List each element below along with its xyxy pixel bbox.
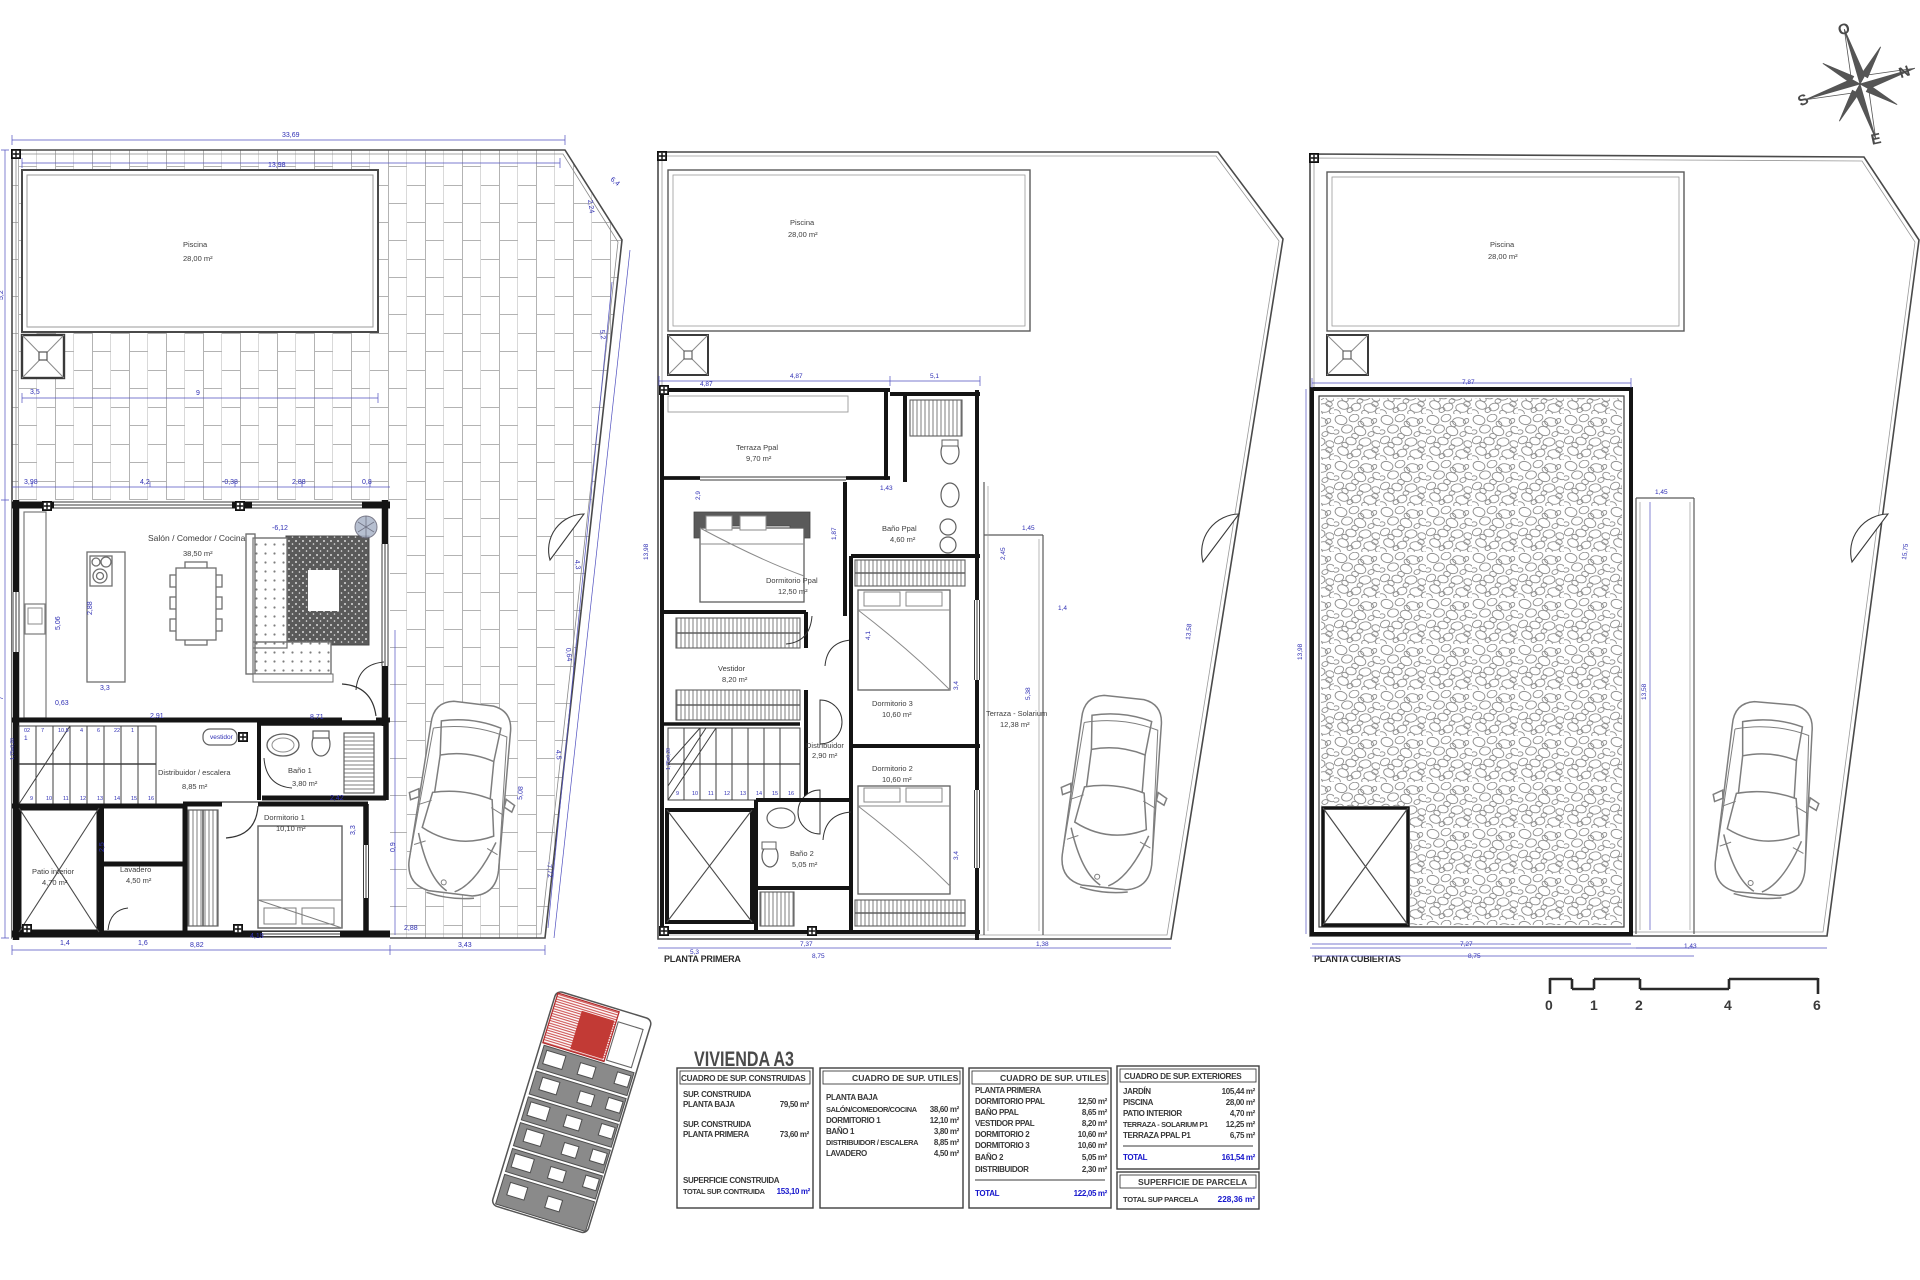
svg-text:10: 10 xyxy=(692,791,698,797)
svg-text:8,20 m²: 8,20 m² xyxy=(1082,1119,1108,1128)
svg-text:5,05 m²: 5,05 m² xyxy=(1082,1153,1108,1162)
svg-text:13,58: 13,58 xyxy=(1641,683,1648,700)
svg-text:2,91: 2,91 xyxy=(150,713,164,720)
svg-text:4,50 m²: 4,50 m² xyxy=(934,1149,960,1158)
svg-text:6: 6 xyxy=(1813,997,1821,1013)
svg-text:BAÑO PPAL: BAÑO PPAL xyxy=(975,1108,1019,1117)
svg-text:5,38: 5,38 xyxy=(1025,687,1032,700)
svg-text:BAÑO 1: BAÑO 1 xyxy=(826,1127,855,1136)
svg-text:CUADRO DE SUP. EXTERIORES: CUADRO DE SUP. EXTERIORES xyxy=(1124,1072,1242,1081)
svg-text:DORMITORIO 2: DORMITORIO 2 xyxy=(975,1130,1030,1139)
svg-text:3,4: 3,4 xyxy=(953,851,960,860)
svg-text:10,60 m²: 10,60 m² xyxy=(1078,1130,1108,1139)
svg-text:0,63: 0,63 xyxy=(55,700,69,707)
svg-text:Baño Ppal: Baño Ppal xyxy=(882,524,917,533)
svg-text:1,45: 1,45 xyxy=(1655,489,1668,496)
svg-text:28,00 m²: 28,00 m² xyxy=(183,254,213,263)
svg-text:8,85 m²: 8,85 m² xyxy=(182,782,208,791)
svg-text:10,10 m²: 10,10 m² xyxy=(276,824,306,833)
svg-text:5,2: 5,2 xyxy=(598,329,606,340)
svg-text:PATIO INTERIOR: PATIO INTERIOR xyxy=(1123,1109,1182,1118)
svg-text:9: 9 xyxy=(196,390,200,397)
svg-text:3,3: 3,3 xyxy=(350,825,357,835)
svg-text:122,05 m²: 122,05 m² xyxy=(1074,1189,1108,1198)
svg-text:38,50 m²: 38,50 m² xyxy=(183,549,213,558)
svg-text:10,60 m²: 10,60 m² xyxy=(882,710,912,719)
svg-text:8,71: 8,71 xyxy=(310,714,324,721)
svg-text:8,65 m²: 8,65 m² xyxy=(1082,1108,1108,1117)
svg-text:12,10 m²: 12,10 m² xyxy=(930,1116,960,1125)
svg-text:7,37: 7,37 xyxy=(800,941,813,948)
svg-text:12,50 m²: 12,50 m² xyxy=(1078,1097,1108,1106)
svg-text:TOTAL SUP. CONTRUIDA: TOTAL SUP. CONTRUIDA xyxy=(683,1187,766,1196)
svg-text:CUADRO DE SUP. CONSTRUIDAS: CUADRO DE SUP. CONSTRUIDAS xyxy=(681,1074,806,1083)
svg-text:11: 11 xyxy=(708,791,714,797)
svg-text:2: 2 xyxy=(1635,997,1643,1013)
svg-text:Terraza Ppal: Terraza Ppal xyxy=(736,443,778,452)
svg-text:Dormitorio 1: Dormitorio 1 xyxy=(264,813,305,822)
svg-text:14: 14 xyxy=(114,796,120,802)
svg-text:Vestidor: Vestidor xyxy=(718,664,746,673)
svg-text:3,80 m²: 3,80 m² xyxy=(934,1127,960,1136)
svg-text:1,38: 1,38 xyxy=(1036,941,1049,948)
svg-text:4,1: 4,1 xyxy=(865,631,872,640)
svg-text:Baño 1: Baño 1 xyxy=(288,766,312,775)
svg-text:8,75: 8,75 xyxy=(812,953,825,960)
svg-text:8,85 m²: 8,85 m² xyxy=(934,1138,960,1147)
svg-text:0,8: 0,8 xyxy=(362,479,372,486)
svg-text:JARDÍN: JARDÍN xyxy=(1123,1087,1151,1096)
svg-text:0,9: 0,9 xyxy=(390,842,397,852)
svg-text:4,5: 4,5 xyxy=(554,750,562,760)
svg-text:Dormitorio 3: Dormitorio 3 xyxy=(872,699,913,708)
svg-text:6,75 m²: 6,75 m² xyxy=(1230,1131,1256,1140)
svg-text:TERRAZA - SOLARIUM P1: TERRAZA - SOLARIUM P1 xyxy=(1123,1120,1208,1129)
svg-text:1: 1 xyxy=(131,728,134,734)
svg-text:Patio interior: Patio interior xyxy=(32,867,75,876)
svg-text:1,4: 1,4 xyxy=(60,940,70,947)
svg-text:3,80 m²: 3,80 m² xyxy=(292,779,318,788)
svg-text:PLANTA PRIMERA: PLANTA PRIMERA xyxy=(975,1086,1041,1095)
svg-text:6: 6 xyxy=(97,728,100,734)
svg-text:7: 7 xyxy=(0,696,5,700)
svg-text:28,00 m²: 28,00 m² xyxy=(1488,252,1518,261)
svg-text:3,98: 3,98 xyxy=(24,479,38,486)
svg-text:16: 16 xyxy=(148,796,154,802)
svg-text:5,06: 5,06 xyxy=(55,616,62,630)
svg-text:1: 1 xyxy=(1590,997,1598,1013)
svg-text:PLANTA CUBIERTAS: PLANTA CUBIERTAS xyxy=(1314,954,1401,964)
svg-text:SUPERFICIE DE PARCELA: SUPERFICIE DE PARCELA xyxy=(1138,1177,1247,1187)
svg-text:Dormitorio Ppal: Dormitorio Ppal xyxy=(766,576,818,585)
svg-text:1,4: 1,4 xyxy=(1058,605,1067,612)
svg-text:PLANTA BAJA: PLANTA BAJA xyxy=(826,1093,878,1102)
svg-text:161,54 m²: 161,54 m² xyxy=(1222,1153,1256,1162)
svg-text:3,4: 3,4 xyxy=(953,681,960,690)
svg-text:14: 14 xyxy=(756,791,762,797)
svg-text:12,38 m²: 12,38 m² xyxy=(1000,720,1030,729)
svg-text:8,82: 8,82 xyxy=(190,942,204,949)
svg-text:SUP. CONSTRUIDA: SUP. CONSTRUIDA xyxy=(683,1090,752,1099)
svg-text:2,88: 2,88 xyxy=(87,601,94,615)
svg-text:1,75x0,28: 1,75x0,28 xyxy=(666,748,672,770)
svg-text:2,9: 2,9 xyxy=(695,491,702,500)
svg-text:5,3: 5,3 xyxy=(690,949,699,956)
svg-text:13,98: 13,98 xyxy=(268,162,286,169)
svg-text:1,6: 1,6 xyxy=(138,940,148,947)
svg-text:7,87: 7,87 xyxy=(1462,379,1475,386)
svg-text:-7,72: -7,72 xyxy=(545,862,553,879)
svg-text:13: 13 xyxy=(97,796,103,802)
svg-text:0,64: 0,64 xyxy=(564,647,572,661)
svg-text:11: 11 xyxy=(63,796,69,802)
svg-text:0: 0 xyxy=(1545,997,1553,1013)
svg-text:8,20 m²: 8,20 m² xyxy=(722,675,748,684)
svg-text:LAVADERO: LAVADERO xyxy=(826,1149,867,1158)
svg-text:4,19: 4,19 xyxy=(250,933,264,940)
svg-text:PLANTA PRIMERA: PLANTA PRIMERA xyxy=(664,954,741,964)
svg-text:PLANTA BAJA: PLANTA BAJA xyxy=(683,1100,735,1109)
svg-text:1,43: 1,43 xyxy=(1684,943,1697,950)
svg-text:VESTIDOR PPAL: VESTIDOR PPAL xyxy=(975,1119,1035,1128)
svg-text:4: 4 xyxy=(80,728,83,734)
svg-text:10: 10 xyxy=(46,796,52,802)
svg-text:3,43: 3,43 xyxy=(458,942,472,949)
svg-text:28,00 m²: 28,00 m² xyxy=(788,230,818,239)
svg-text:Distribuidor / escalera: Distribuidor / escalera xyxy=(158,768,231,777)
svg-text:9,70 m²: 9,70 m² xyxy=(746,454,772,463)
svg-text:4,60 m²: 4,60 m² xyxy=(890,535,916,544)
svg-text:BAÑO 2: BAÑO 2 xyxy=(975,1153,1004,1162)
svg-text:3,3: 3,3 xyxy=(100,685,110,692)
svg-text:10,60 m²: 10,60 m² xyxy=(882,775,912,784)
svg-text:2,90 m²: 2,90 m² xyxy=(812,751,838,760)
svg-text:4,87: 4,87 xyxy=(700,381,713,388)
svg-text:SUPERFICIE CONSTRUIDA: SUPERFICIE CONSTRUIDA xyxy=(683,1176,780,1185)
svg-text:228,36 m²: 228,36 m² xyxy=(1218,1195,1256,1204)
svg-text:-6,12: -6,12 xyxy=(272,525,288,532)
svg-text:22: 22 xyxy=(114,728,120,734)
svg-text:28,00 m²: 28,00 m² xyxy=(1226,1098,1256,1107)
svg-text:13: 13 xyxy=(740,791,746,797)
svg-text:73,60 m²: 73,60 m² xyxy=(780,1130,810,1139)
svg-text:TOTAL: TOTAL xyxy=(975,1189,1000,1198)
svg-text:2,88: 2,88 xyxy=(292,479,306,486)
svg-text:Salón / Comedor / Cocina: Salón / Comedor / Cocina xyxy=(148,533,246,543)
svg-text:79,50 m²: 79,50 m² xyxy=(780,1100,810,1109)
svg-text:153,10 m²: 153,10 m² xyxy=(777,1187,811,1196)
svg-text:Lavadero: Lavadero xyxy=(120,865,151,874)
svg-text:Piscina: Piscina xyxy=(183,240,208,249)
svg-text:-0,38: -0,38 xyxy=(222,479,238,486)
svg-text:10,60 m²: 10,60 m² xyxy=(1078,1141,1108,1150)
svg-text:5,05 m²: 5,05 m² xyxy=(792,860,818,869)
svg-text:3,5: 3,5 xyxy=(30,389,40,396)
svg-text:13,98: 13,98 xyxy=(643,543,650,560)
svg-text:1: 1 xyxy=(24,735,28,742)
svg-text:1,87: 1,87 xyxy=(831,527,838,540)
svg-text:Piscina: Piscina xyxy=(1490,240,1515,249)
svg-text:DISTRIBUIDOR: DISTRIBUIDOR xyxy=(975,1165,1029,1174)
svg-text:33,69: 33,69 xyxy=(282,132,300,139)
svg-text:5,2: 5,2 xyxy=(0,290,5,300)
svg-text:5,08: 5,08 xyxy=(517,786,525,800)
svg-text:Piscina: Piscina xyxy=(790,218,815,227)
svg-text:2,45: 2,45 xyxy=(1000,547,1007,560)
svg-text:SALÓN/COMEDOR/COCINA: SALÓN/COMEDOR/COCINA xyxy=(826,1105,918,1114)
svg-text:10,5: 10,5 xyxy=(58,728,69,734)
svg-text:2,30 m²: 2,30 m² xyxy=(1082,1165,1108,1174)
svg-text:1,75x0,28: 1,75x0,28 xyxy=(10,738,16,760)
svg-text:4,3: 4,3 xyxy=(573,559,581,570)
svg-text:12: 12 xyxy=(724,791,730,797)
svg-text:1,43: 1,43 xyxy=(880,485,893,492)
svg-text:4,70 m²: 4,70 m² xyxy=(42,878,68,887)
svg-text:TOTAL: TOTAL xyxy=(1123,1153,1148,1162)
svg-text:CUADRO DE SUP. UTILES: CUADRO DE SUP. UTILES xyxy=(1000,1073,1107,1083)
svg-text:9: 9 xyxy=(676,791,679,797)
svg-text:DORMITORIO 1: DORMITORIO 1 xyxy=(826,1116,881,1125)
svg-text:38,60 m²: 38,60 m² xyxy=(930,1105,960,1114)
svg-text:9: 9 xyxy=(30,796,33,802)
svg-text:Terraza - Solarium: Terraza - Solarium xyxy=(986,709,1047,718)
svg-text:vestidor: vestidor xyxy=(210,734,234,741)
svg-text:12,25 m²: 12,25 m² xyxy=(1226,1120,1256,1129)
svg-text:DISTRIBUIDOR / ESCALERA: DISTRIBUIDOR / ESCALERA xyxy=(826,1138,919,1147)
svg-text:2,5: 2,5 xyxy=(99,842,106,852)
svg-text:12: 12 xyxy=(80,796,86,802)
svg-text:4,87: 4,87 xyxy=(790,373,803,380)
svg-text:105,44 m²: 105,44 m² xyxy=(1222,1087,1256,1096)
svg-text:16: 16 xyxy=(788,791,794,797)
svg-text:4,50 m²: 4,50 m² xyxy=(126,876,152,885)
svg-text:2,42: 2,42 xyxy=(330,795,344,802)
svg-text:5,1: 5,1 xyxy=(930,373,939,380)
svg-text:15: 15 xyxy=(131,796,137,802)
svg-text:13,58: 13,58 xyxy=(1185,623,1193,640)
svg-text:4,70 m²: 4,70 m² xyxy=(1230,1109,1256,1118)
svg-text:12,50 m²: 12,50 m² xyxy=(778,587,808,596)
svg-text:15: 15 xyxy=(772,791,778,797)
svg-text:DORMITORIO PPAL: DORMITORIO PPAL xyxy=(975,1097,1045,1106)
svg-text:SUP. CONSTRUIDA: SUP. CONSTRUIDA xyxy=(683,1120,752,1129)
svg-text:CUADRO DE SUP. UTILES: CUADRO DE SUP. UTILES xyxy=(852,1073,959,1083)
svg-text:13,98: 13,98 xyxy=(1297,643,1304,660)
svg-text:8,75: 8,75 xyxy=(1468,953,1481,960)
svg-text:PLANTA PRIMERA: PLANTA PRIMERA xyxy=(683,1130,749,1139)
svg-text:Dormitorio 2: Dormitorio 2 xyxy=(872,764,913,773)
svg-text:DORMITORIO 3: DORMITORIO 3 xyxy=(975,1141,1030,1150)
svg-text:4,2: 4,2 xyxy=(140,479,150,486)
svg-text:7,27: 7,27 xyxy=(1460,941,1473,948)
svg-text:TOTAL SUP PARCELA: TOTAL SUP PARCELA xyxy=(1123,1195,1199,1204)
svg-text:1,45: 1,45 xyxy=(1022,525,1035,532)
svg-text:4: 4 xyxy=(1724,997,1732,1013)
svg-text:TERRAZA PPAL P1: TERRAZA PPAL P1 xyxy=(1123,1131,1191,1140)
svg-text:PISCINA: PISCINA xyxy=(1123,1098,1154,1107)
svg-text:2,88: 2,88 xyxy=(404,925,418,932)
svg-text:7: 7 xyxy=(41,728,44,734)
svg-text:02: 02 xyxy=(24,728,30,734)
svg-text:Baño 2: Baño 2 xyxy=(790,849,814,858)
